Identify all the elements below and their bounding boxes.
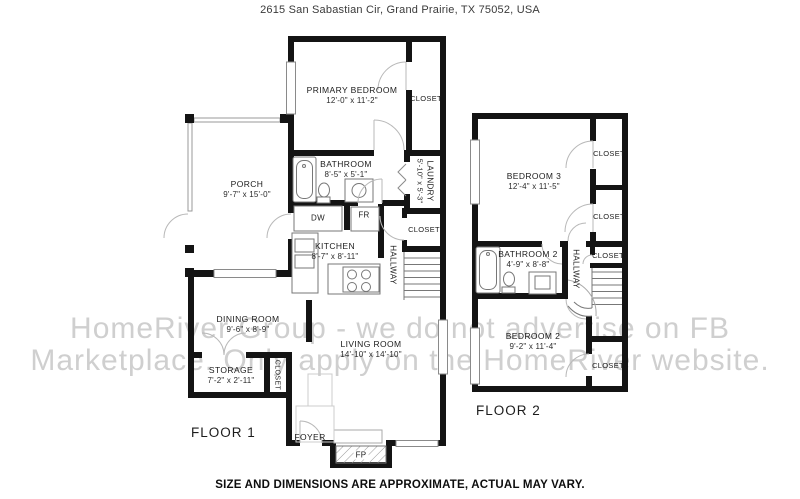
label-closet-bedroom2: CLOSET <box>592 361 624 370</box>
label-closet-hall-f2: CLOSET <box>592 251 624 260</box>
label-storage: STORAGE 7'-2" x 2'-11" <box>208 365 255 385</box>
label-porch: PORCH 9'-7" x 15'-0" <box>223 179 271 199</box>
room-name: BATHROOM 2 <box>498 249 558 259</box>
room-name: HALLWAY <box>572 249 581 289</box>
room-name: FOYER <box>294 432 325 442</box>
room-name: PORCH <box>223 179 271 189</box>
room-dims: 14'-10" x 14'-10" <box>340 350 402 359</box>
label-bathroom2: BATHROOM 2 4'-9" x 8'-8" <box>498 249 558 269</box>
label-foyer: FOYER <box>294 432 325 442</box>
hearth <box>334 430 382 443</box>
room-name: CLOSET <box>593 212 625 221</box>
floor1-label: FLOOR 1 <box>191 425 256 440</box>
room-name: STORAGE <box>208 365 255 375</box>
room-name: BATHROOM <box>320 159 372 169</box>
room-name: CLOSET <box>593 149 625 158</box>
label-kitchen: KITCHEN 8'-7" x 8'-11" <box>312 241 359 261</box>
room-dims: 12'-0" x 11'-2" <box>307 96 398 105</box>
room-dims: 9'-6" x 8'-9" <box>217 325 280 334</box>
label-fridge: FR <box>358 211 369 220</box>
label-storage-closet: CLOSET <box>274 360 281 390</box>
label-hallway-f2: HALLWAY <box>572 249 581 289</box>
room-name: BEDROOM 3 <box>507 171 562 181</box>
room-name: CLOSET <box>274 360 281 390</box>
label-hall-closet: CLOSET <box>408 225 440 234</box>
room-name: CLOSET <box>592 361 624 370</box>
room-name: BEDROOM 2 <box>506 331 561 341</box>
label-closet-top: CLOSET <box>593 149 625 158</box>
room-name: LIVING ROOM <box>340 339 402 349</box>
toilet2 <box>504 272 515 286</box>
label-hallway-f1: HALLWAY <box>389 245 398 285</box>
label-fireplace: FP <box>354 451 369 460</box>
label-laundry: LAUNDRY 5'-10" x 5'-3" <box>416 159 435 204</box>
room-name: DINING ROOM <box>217 314 280 324</box>
room-name: CLOSET <box>592 251 624 260</box>
label-dishwasher: DW <box>311 214 325 223</box>
room-name: KITCHEN <box>312 241 359 251</box>
toilet <box>319 183 330 197</box>
label-primary-bedroom: PRIMARY BEDROOM 12'-0" x 11'-2" <box>307 85 398 105</box>
label-bedroom2: BEDROOM 2 9'-2" x 11'-4" <box>506 331 561 351</box>
floorplan-page: 2615 San Sabastian Cir, Grand Prairie, T… <box>0 0 800 499</box>
room-dims: 12'-4" x 11'-5" <box>507 182 562 191</box>
label-bathroom: BATHROOM 8'-5" x 5'-1" <box>320 159 372 179</box>
room-name: LAUNDRY <box>426 159 435 204</box>
room-dims: 4'-9" x 8'-8" <box>498 260 558 269</box>
label-living-room: LIVING ROOM 14'-10" x 14'-10" <box>340 339 402 359</box>
floor1-stairs <box>404 252 440 300</box>
room-dims: 8'-7" x 8'-11" <box>312 252 359 261</box>
room-dims: 9'-7" x 15'-0" <box>223 190 271 199</box>
room-name: CLOSET <box>410 94 442 103</box>
label-dining-room: DINING ROOM 9'-6" x 8'-9" <box>217 314 280 334</box>
label-primary-closet: CLOSET <box>410 94 442 103</box>
room-name: CLOSET <box>408 225 440 234</box>
floorplan-drawing <box>0 0 800 499</box>
room-dims: 8'-5" x 5'-1" <box>320 170 372 179</box>
room-name: PRIMARY BEDROOM <box>307 85 398 95</box>
room-dims: 9'-2" x 11'-4" <box>506 342 561 351</box>
label-bedroom3: BEDROOM 3 12'-4" x 11'-5" <box>507 171 562 191</box>
label-closet-mid: CLOSET <box>593 212 625 221</box>
room-dims: 7'-2" x 2'-11" <box>208 376 255 385</box>
floor2-label: FLOOR 2 <box>476 403 541 418</box>
room-name: HALLWAY <box>389 245 398 285</box>
room-dims: 5'-10" x 5'-3" <box>416 159 425 204</box>
